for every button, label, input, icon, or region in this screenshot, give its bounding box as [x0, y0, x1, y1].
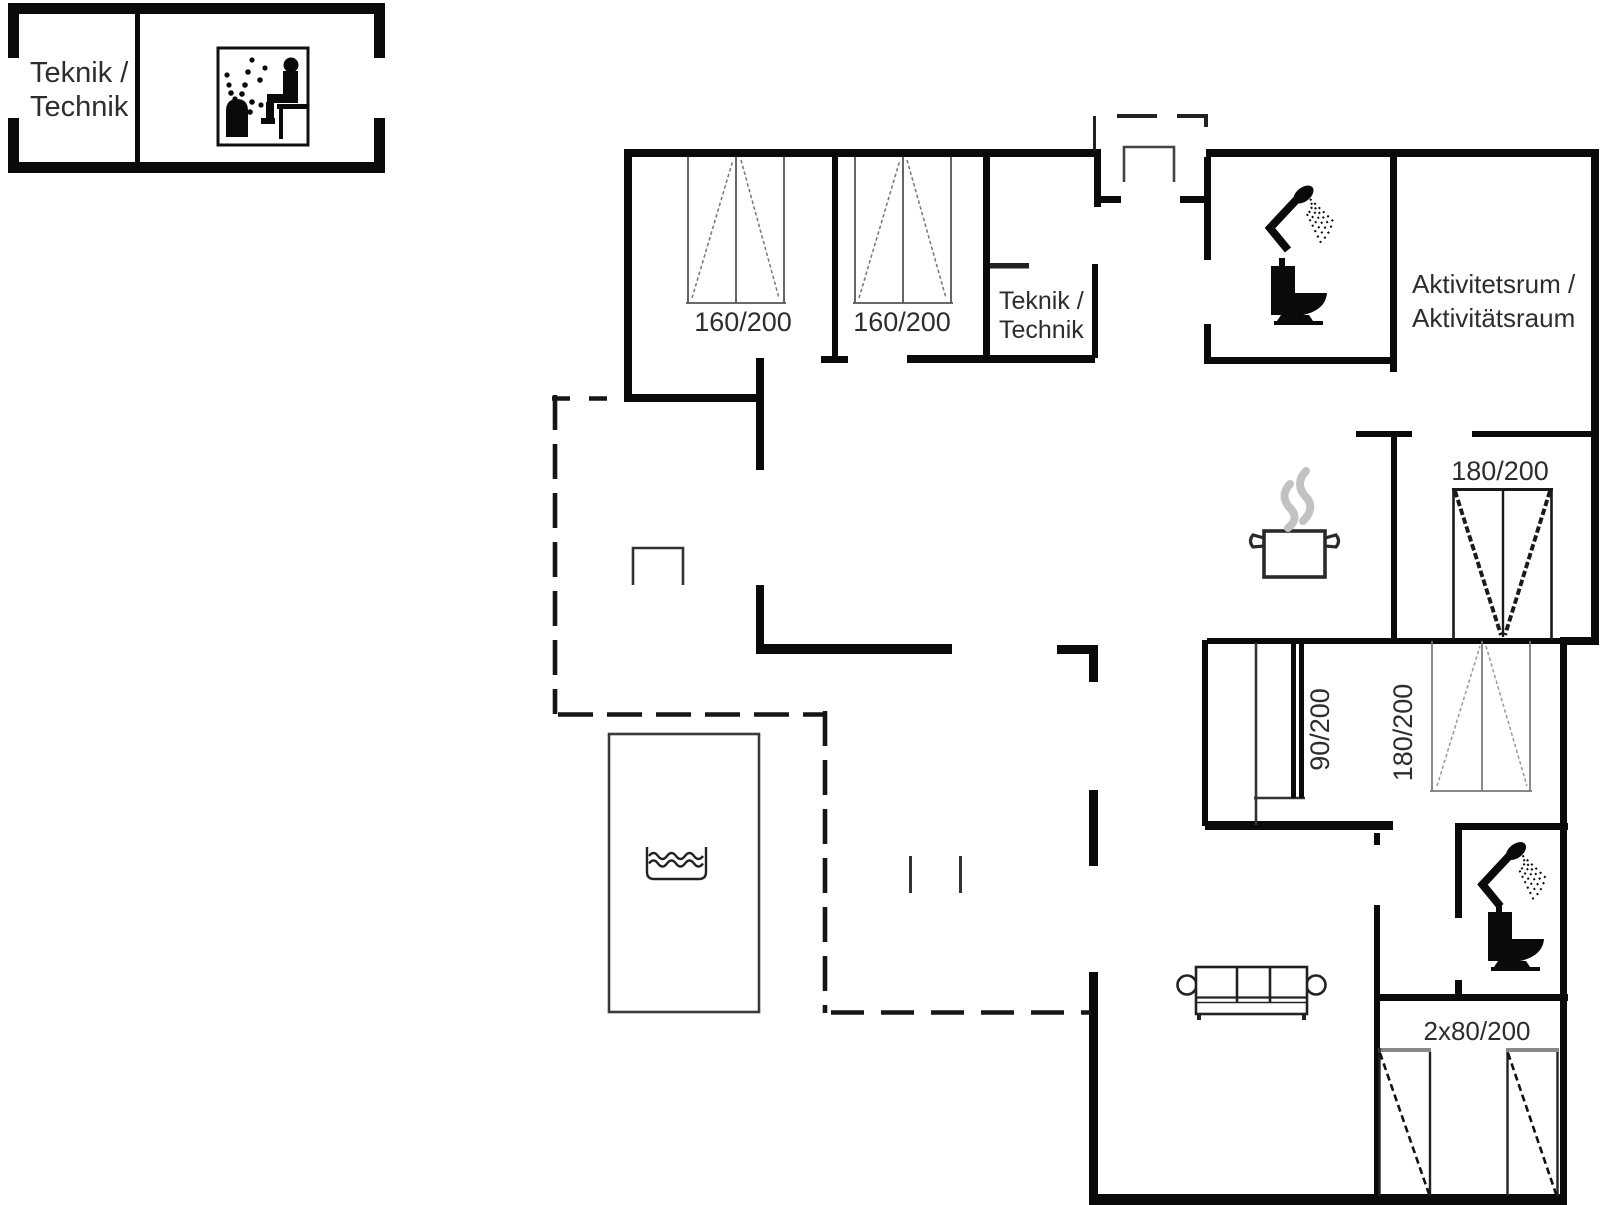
svg-text:180/200: 180/200: [1451, 456, 1549, 486]
svg-text:Technik: Technik: [30, 91, 129, 123]
svg-text:Technik: Technik: [999, 316, 1084, 344]
svg-text:180/200: 180/200: [1388, 684, 1418, 782]
svg-text:160/200: 160/200: [853, 307, 951, 337]
svg-text:2x80/200: 2x80/200: [1424, 1016, 1531, 1046]
svg-text:160/200: 160/200: [694, 307, 792, 337]
svg-text:Teknik /: Teknik /: [30, 57, 129, 89]
svg-text:Aktivitätsraum: Aktivitätsraum: [1412, 303, 1575, 333]
svg-text:Aktivitetsrum /: Aktivitetsrum /: [1412, 269, 1576, 299]
svg-text:Teknik /: Teknik /: [999, 287, 1084, 315]
svg-text:90/200: 90/200: [1305, 688, 1335, 771]
